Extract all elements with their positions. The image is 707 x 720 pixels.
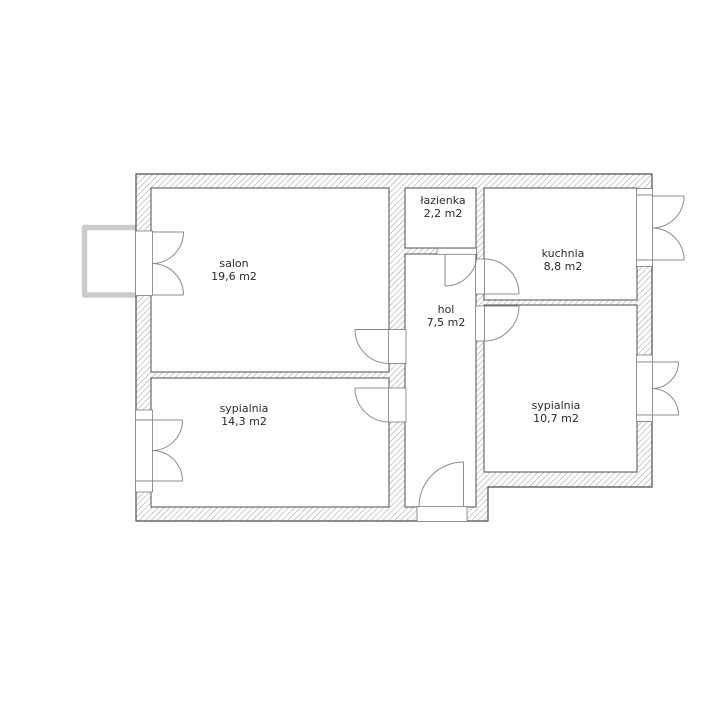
room-name-sypialnia-left: sypialnia (220, 402, 269, 415)
door-opening-sypialnia-left (389, 388, 407, 422)
entrance-door-opening (417, 507, 467, 522)
door-opening-sypialnia-right (476, 306, 485, 341)
room-area-sypialnia-right: 10,7 m2 (533, 412, 579, 425)
window-jamb-sypialnia-right-top (637, 355, 653, 362)
room-label-group-kuchnia: kuchnia 8,8 m2 (542, 247, 585, 273)
room-floor-kuchnia (484, 188, 637, 300)
floor-plan: salon 19,6 m2 sypialnia 14,3 m2 łazienka… (0, 0, 707, 720)
room-area-hol: 7,5 m2 (427, 316, 466, 329)
window-jamb-kuchnia-top (637, 189, 653, 196)
room-name-sypialnia-right: sypialnia (532, 399, 581, 412)
balcony-railing (85, 228, 137, 296)
floor-plan-drawing: salon 19,6 m2 sypialnia 14,3 m2 łazienka… (0, 0, 707, 720)
room-label-group-sypialnia-left: sypialnia 14,3 m2 (220, 402, 269, 428)
balcony-door-opening-salon (136, 231, 153, 296)
window-jamb-sypialnia-right-bottom (637, 415, 653, 422)
door-opening-salon (389, 330, 407, 364)
door-opening-kuchnia (476, 259, 485, 294)
door-opening-lazienka (437, 248, 477, 254)
room-floor-salon (151, 188, 389, 372)
door-swing-window-sypialnia-right (652, 362, 679, 415)
room-name-hol: hol (438, 303, 455, 316)
room-label-group-lazienka: łazienka 2,2 m2 (420, 194, 465, 220)
room-area-sypialnia-left: 14,3 m2 (221, 415, 267, 428)
window-jamb-kuchnia-bottom (637, 260, 653, 267)
room-floor-sypialnia-right (484, 305, 637, 472)
balcony-door-opening-kuchnia (637, 195, 653, 260)
room-floor-hol (405, 254, 476, 507)
room-area-salon: 19,6 m2 (211, 270, 257, 283)
room-label-group-sypialnia-right: sypialnia 10,7 m2 (532, 399, 581, 425)
window-jamb-sypialnia-left-bottom (136, 481, 153, 492)
room-floor-sypialnia-left (151, 378, 389, 507)
room-name-lazienka: łazienka (420, 194, 465, 207)
window-opening-sypialnia-right (637, 362, 653, 415)
room-area-kuchnia: 8,8 m2 (544, 260, 583, 273)
room-name-kuchnia: kuchnia (542, 247, 585, 260)
window-jamb-sypialnia-left-top (136, 410, 153, 420)
room-area-lazienka: 2,2 m2 (424, 207, 463, 220)
door-swing-balcony-kuchnia (652, 196, 684, 260)
window-opening-sypialnia-left (136, 420, 153, 481)
room-name-salon: salon (219, 257, 248, 270)
